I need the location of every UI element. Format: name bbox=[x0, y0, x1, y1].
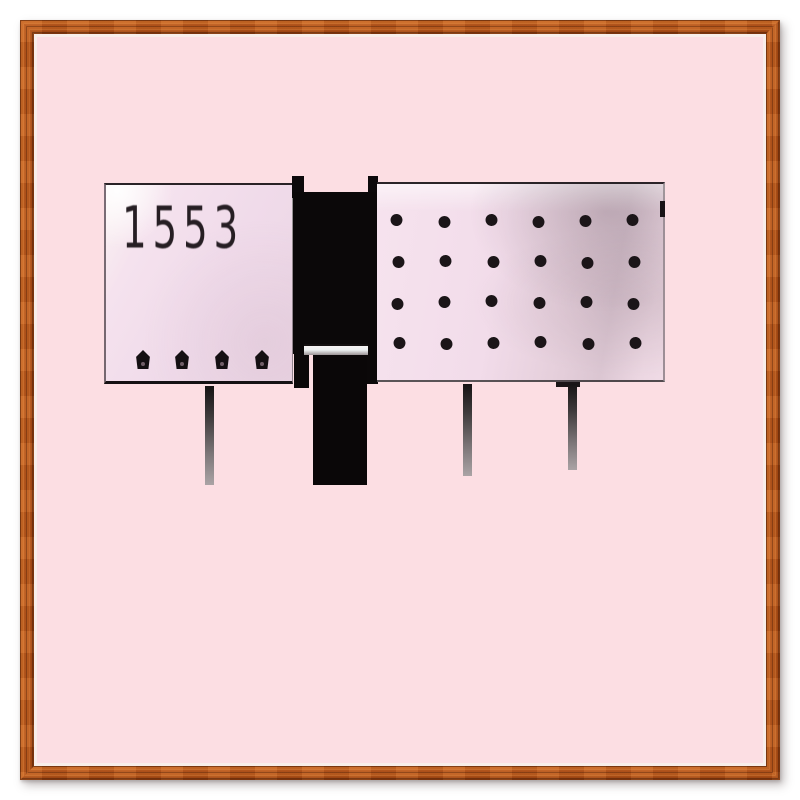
knob-row bbox=[106, 350, 292, 372]
perforation-dot bbox=[627, 254, 642, 269]
frame-wood-bottom bbox=[20, 766, 780, 780]
perforation-dot bbox=[389, 212, 404, 227]
panel-edge-mark bbox=[660, 201, 665, 217]
perforation-dot bbox=[624, 211, 641, 228]
perforation-dot bbox=[485, 335, 502, 352]
perforation-dot bbox=[438, 336, 454, 352]
perforation-dot bbox=[579, 294, 594, 309]
perforation-dot bbox=[532, 253, 548, 269]
frame-wood-left bbox=[20, 20, 34, 780]
perforation-dot bbox=[627, 334, 644, 351]
picture-frame bbox=[20, 20, 780, 780]
pink-matte bbox=[34, 34, 766, 766]
perforation-dot bbox=[580, 336, 596, 352]
perforation-dot bbox=[436, 213, 452, 229]
support-leg-far-right bbox=[568, 384, 577, 470]
perforation-dot bbox=[625, 295, 641, 311]
perforation-dot bbox=[389, 295, 406, 312]
perforation-dot bbox=[531, 215, 546, 230]
perforation-dot bbox=[531, 295, 548, 312]
perforation-dot bbox=[484, 293, 500, 309]
hook-knob bbox=[175, 350, 190, 369]
frame-wood-top bbox=[20, 20, 780, 34]
hook-knob bbox=[136, 350, 151, 369]
hook-knob bbox=[215, 350, 230, 369]
support-leg-left bbox=[205, 386, 214, 485]
perforation-dot bbox=[390, 254, 406, 270]
perforation-dot bbox=[533, 334, 548, 349]
perforation-dot bbox=[577, 213, 593, 229]
perforation-dot bbox=[392, 335, 407, 350]
perforation-dot bbox=[437, 252, 454, 269]
photo-of-framed-print: 1553 bbox=[0, 0, 800, 800]
perforation-dot bbox=[485, 255, 500, 270]
support-leg-middle-right bbox=[463, 384, 472, 476]
sign-left-panel: 1553 bbox=[104, 183, 293, 384]
tower-body bbox=[293, 192, 378, 354]
perforation-dot bbox=[437, 295, 452, 310]
sign-right-panel bbox=[377, 182, 665, 382]
tower-light-band bbox=[304, 344, 368, 355]
perforation-dot bbox=[579, 254, 596, 271]
frame-wood-right bbox=[766, 20, 780, 780]
perforation-dot bbox=[483, 212, 500, 229]
tower-side-left bbox=[294, 352, 309, 388]
tower-center-leg bbox=[313, 355, 367, 485]
hook-knob bbox=[255, 350, 270, 369]
house-number-text: 1553 bbox=[122, 199, 244, 257]
